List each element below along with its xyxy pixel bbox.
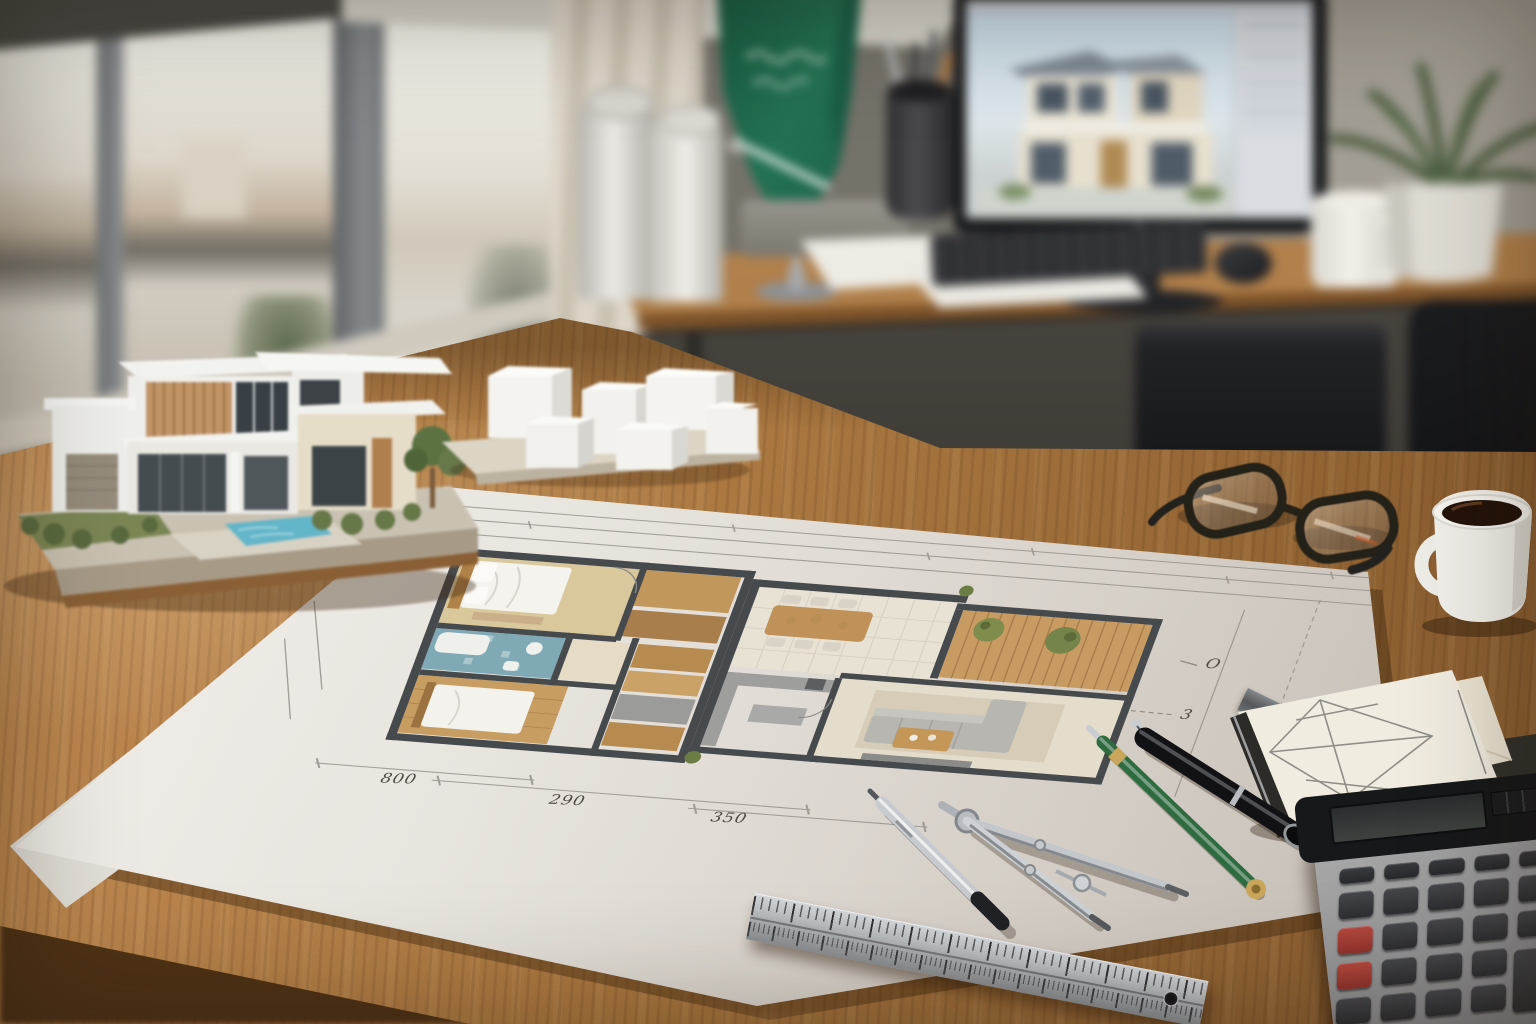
calc-key[interactable] xyxy=(1381,956,1417,986)
calculator-keypad xyxy=(1335,849,1536,1024)
leg-screw xyxy=(1025,865,1035,875)
drafting-compass-group xyxy=(860,775,1200,945)
coffee-mug xyxy=(1412,462,1536,637)
window-dark xyxy=(236,382,288,438)
calc-key[interactable] xyxy=(1518,873,1536,903)
glasses xyxy=(1138,446,1388,581)
calc-key[interactable] xyxy=(1338,890,1374,920)
calc-key[interactable] xyxy=(1425,987,1461,1017)
calc-key[interactable] xyxy=(1384,862,1419,881)
calc-key[interactable] xyxy=(1473,877,1509,907)
calc-key[interactable] xyxy=(1383,886,1419,916)
calc-key[interactable] xyxy=(1471,948,1507,978)
mechanical-pencil xyxy=(870,791,1010,933)
calc-key[interactable] xyxy=(1428,881,1464,911)
architect-desk-scene: 800 290 350 O 3 xyxy=(0,0,1536,1024)
calc-key[interactable] xyxy=(1336,996,1372,1024)
glasses-lens-left xyxy=(1183,462,1288,540)
tree-foliage xyxy=(404,448,428,472)
solar-panel xyxy=(1490,786,1536,816)
column xyxy=(230,452,240,512)
silver-band xyxy=(1235,794,1240,797)
calc-key[interactable] xyxy=(1427,917,1463,947)
house-model xyxy=(0,318,480,618)
gold-band xyxy=(1113,752,1122,761)
window-dark xyxy=(312,446,366,506)
calc-key[interactable] xyxy=(1470,983,1506,1013)
calculator xyxy=(1312,811,1536,1024)
glass-wall2 xyxy=(244,456,288,510)
wood-slat-facade xyxy=(146,382,232,440)
calc-key-red[interactable] xyxy=(1338,925,1374,955)
calc-key[interactable] xyxy=(1474,853,1509,872)
calc-key[interactable] xyxy=(1517,908,1536,938)
adjuster-knob xyxy=(1074,875,1090,891)
butt-cap-inner xyxy=(1252,885,1261,894)
leg-a-edge xyxy=(969,825,1168,890)
door-wood xyxy=(372,438,392,508)
calc-key[interactable] xyxy=(1472,912,1508,942)
leg-screw xyxy=(1035,840,1045,850)
massing-model xyxy=(430,332,760,497)
calc-key[interactable] xyxy=(1519,849,1536,868)
calculator-display xyxy=(1329,791,1488,845)
garage-door xyxy=(66,454,118,510)
calc-key[interactable] xyxy=(1426,952,1462,982)
calc-key[interactable] xyxy=(1382,921,1418,951)
calc-key[interactable] xyxy=(1429,857,1464,876)
calc-key[interactable] xyxy=(1339,866,1374,885)
calc-key-red[interactable] xyxy=(1337,961,1373,991)
calc-plus-key[interactable] xyxy=(1512,946,1536,1012)
calc-key[interactable] xyxy=(1381,992,1417,1022)
pencil-grip xyxy=(978,899,1002,923)
